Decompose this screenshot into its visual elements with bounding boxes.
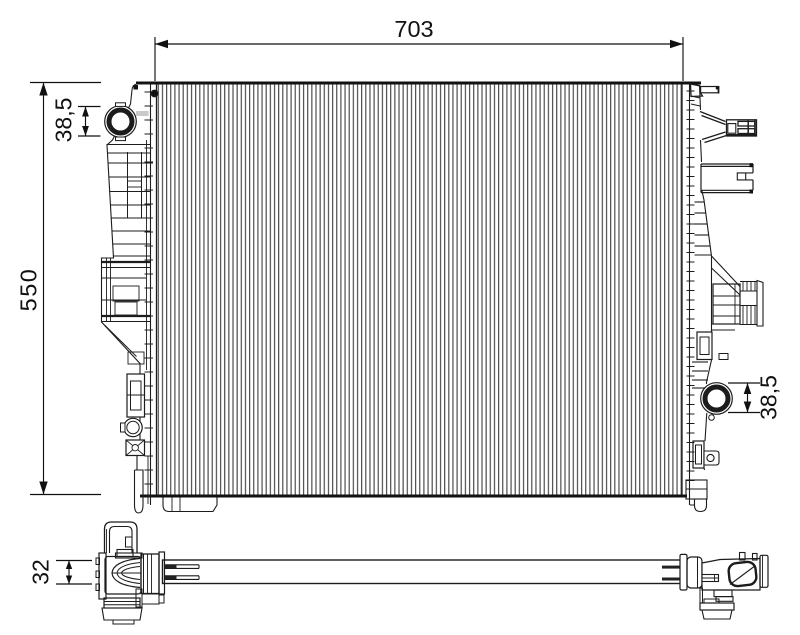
svg-text:32: 32: [28, 559, 54, 585]
svg-text:703: 703: [394, 16, 433, 42]
svg-text:38,5: 38,5: [756, 375, 782, 420]
svg-text:38,5: 38,5: [51, 98, 77, 143]
svg-text:550: 550: [16, 268, 42, 312]
